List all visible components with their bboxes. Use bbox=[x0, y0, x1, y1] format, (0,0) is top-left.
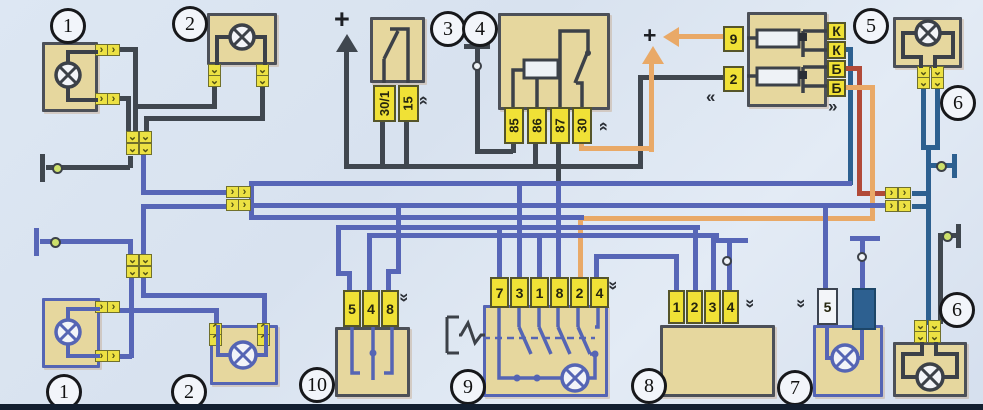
wire-segment bbox=[674, 254, 679, 291]
wire-segment bbox=[396, 203, 401, 273]
ground-dot-icon bbox=[936, 161, 947, 172]
cluster-terminal-2: 2 bbox=[686, 290, 703, 324]
badge-2-top: 2 bbox=[172, 6, 208, 42]
plug-connector-icon: › bbox=[238, 186, 251, 198]
wire-segment bbox=[253, 181, 852, 186]
power-arrow-icon bbox=[336, 34, 358, 52]
switch-lever-icon bbox=[441, 313, 485, 359]
plus-sign-fuse: + bbox=[643, 22, 656, 49]
wire-segment bbox=[253, 203, 890, 208]
double-chevron-icon: « bbox=[740, 299, 757, 308]
wire-segment bbox=[912, 191, 928, 196]
wire-segment bbox=[921, 87, 926, 149]
plug-connector-icon: › bbox=[885, 187, 898, 199]
wire-segment bbox=[533, 143, 538, 169]
double-chevron-icon: « bbox=[596, 122, 613, 131]
plug-connector-icon: ⌄ bbox=[139, 266, 152, 278]
cluster-terminal-4: 4 bbox=[722, 290, 739, 324]
wire-segment bbox=[128, 156, 133, 168]
fuse-box-icon bbox=[747, 12, 827, 107]
fuse-output-b1: Б bbox=[827, 60, 846, 78]
rheostat-terminal-8: 8 bbox=[381, 290, 399, 327]
wire-segment bbox=[649, 60, 654, 152]
wiring-diagram: ››››⌄⌄⌄⌄⌄⌄⌄⌄⌄⌄⌄⌄››››››››››››⌃⌃⌃⌃⌄⌄⌄⌄⌄⌄⌄⌄… bbox=[0, 0, 983, 410]
badge-6-top: 6 bbox=[940, 85, 976, 121]
ignition-terminal-15: 15 bbox=[398, 85, 419, 122]
wire-segment bbox=[141, 204, 146, 258]
wire-segment bbox=[40, 154, 45, 182]
lamp-icon bbox=[42, 42, 98, 112]
plug-connector-icon: ⌄ bbox=[931, 77, 944, 89]
plus-sign-ignition: + bbox=[334, 4, 350, 35]
fuse-output-k1: К bbox=[827, 22, 846, 40]
plug-connector-icon: ⌄ bbox=[126, 143, 139, 155]
plug-connector-icon: › bbox=[898, 187, 911, 199]
license-lamp-terminal-5: 5 bbox=[817, 288, 838, 325]
fuse-input-9: 9 bbox=[723, 26, 744, 52]
wire-segment bbox=[367, 233, 719, 238]
wire-segment bbox=[212, 85, 217, 109]
lamp-icon bbox=[210, 325, 278, 385]
wire-segment bbox=[34, 228, 39, 256]
instrument-cluster-box bbox=[660, 325, 775, 397]
wire-segment bbox=[126, 96, 131, 136]
wire-segment bbox=[141, 293, 267, 298]
plug-connector-icon: › bbox=[107, 93, 120, 105]
wire-segment bbox=[380, 119, 385, 169]
switch-terminal-7: 7 bbox=[490, 277, 509, 308]
wire-segment bbox=[693, 225, 698, 291]
plug-connector-icon: ⌄ bbox=[208, 75, 221, 87]
switch-terminal-8: 8 bbox=[550, 277, 569, 308]
wire-segment bbox=[141, 204, 229, 209]
cluster-terminal-1: 1 bbox=[668, 290, 685, 324]
rheostat-terminal-4: 4 bbox=[362, 290, 380, 327]
ground-dot-icon bbox=[722, 256, 732, 266]
wire-segment bbox=[926, 145, 931, 325]
badge-8: 8 bbox=[631, 368, 667, 404]
fuse-output-k2: К bbox=[827, 41, 846, 59]
wire-segment bbox=[497, 225, 502, 279]
wire-segment bbox=[935, 87, 940, 149]
plug-connector-icon: › bbox=[107, 301, 120, 313]
switch-terminal-1: 1 bbox=[530, 277, 549, 308]
relay-icon bbox=[498, 13, 610, 110]
ignition-terminal-30-1: 30/1 bbox=[373, 85, 396, 122]
ground-dot-icon bbox=[472, 61, 482, 71]
wire-segment bbox=[262, 293, 267, 325]
wire-segment bbox=[347, 271, 352, 291]
wire-segment bbox=[642, 75, 723, 80]
ground-dot-icon bbox=[942, 231, 953, 242]
wire-segment bbox=[511, 143, 516, 153]
badge-4: 4 bbox=[462, 11, 498, 47]
plug-connector-icon: ⌄ bbox=[126, 131, 139, 143]
badge-6-bottom: 6 bbox=[939, 292, 975, 328]
wire-segment bbox=[716, 238, 748, 243]
relay-terminal-87: 87 bbox=[550, 107, 570, 144]
plug-connector-icon: ⌄ bbox=[139, 254, 152, 266]
wire-segment bbox=[344, 164, 642, 169]
wire-segment bbox=[141, 190, 229, 195]
wire-segment bbox=[956, 224, 961, 248]
wire-segment bbox=[870, 85, 875, 221]
wire-segment bbox=[129, 278, 134, 312]
wire-segment bbox=[727, 241, 732, 291]
plug-connector-icon: › bbox=[885, 200, 898, 212]
plug-connector-icon: › bbox=[238, 199, 251, 211]
rheostat-icon bbox=[335, 327, 410, 397]
plug-connector-icon: › bbox=[107, 350, 120, 362]
wire-segment bbox=[556, 143, 561, 185]
lamp-icon bbox=[893, 342, 967, 397]
plug-connector-icon: ⌄ bbox=[126, 254, 139, 266]
wire-segment bbox=[136, 104, 216, 109]
double-chevron-icon: « bbox=[828, 100, 837, 117]
lamp-icon bbox=[42, 298, 100, 368]
plug-connector-icon: ⌄ bbox=[139, 131, 152, 143]
badge-3: 3 bbox=[430, 11, 466, 47]
ignition-switch-icon bbox=[370, 17, 425, 83]
badge-9: 9 bbox=[450, 369, 486, 405]
wire-segment bbox=[556, 183, 561, 279]
wire-segment bbox=[952, 154, 957, 178]
switch-terminal-2: 2 bbox=[570, 277, 589, 308]
wire-segment bbox=[133, 47, 138, 136]
switch-terminal-4: 4 bbox=[590, 277, 609, 308]
fuse-input-2: 2 bbox=[723, 66, 744, 92]
wire-segment bbox=[860, 239, 865, 289]
badge-1-top: 1 bbox=[50, 8, 86, 44]
relay-terminal-85: 85 bbox=[504, 107, 524, 144]
wire-segment bbox=[676, 34, 726, 39]
wire-segment bbox=[638, 75, 643, 169]
license-lamp-connector bbox=[852, 288, 876, 330]
switch-terminal-3: 3 bbox=[510, 277, 529, 308]
double-chevron-icon: « bbox=[791, 299, 808, 308]
wire-segment bbox=[579, 143, 584, 151]
wire-segment bbox=[253, 215, 584, 220]
wire-segment bbox=[144, 116, 264, 121]
wire-segment bbox=[594, 254, 678, 259]
plug-connector-icon: ⌄ bbox=[917, 77, 930, 89]
wire-segment bbox=[537, 233, 542, 279]
plug-connector-icon: ⌄ bbox=[256, 75, 269, 87]
relay-terminal-30: 30 bbox=[572, 107, 592, 144]
wire-segment bbox=[850, 236, 880, 241]
power-arrow-icon bbox=[663, 27, 679, 47]
cluster-terminal-3: 3 bbox=[704, 290, 721, 324]
plug-connector-icon: › bbox=[107, 44, 120, 56]
lamp-icon bbox=[207, 13, 277, 65]
wire-segment bbox=[260, 85, 265, 121]
photo-edge bbox=[0, 404, 983, 410]
lamp-icon bbox=[813, 325, 883, 397]
ground-dot-icon bbox=[857, 252, 867, 262]
double-chevron-icon: « bbox=[706, 88, 715, 105]
wire-segment bbox=[823, 203, 828, 289]
wire-segment bbox=[386, 271, 391, 291]
wire-segment bbox=[336, 225, 341, 273]
badge-5: 5 bbox=[853, 8, 889, 44]
light-switch-icon bbox=[483, 305, 608, 397]
wire-segment bbox=[344, 52, 349, 168]
lamp-icon bbox=[893, 17, 962, 68]
relay-terminal-86: 86 bbox=[527, 107, 547, 144]
ground-dot-icon bbox=[50, 237, 61, 248]
rheostat-terminal-5: 5 bbox=[343, 290, 361, 327]
plug-connector-icon: ⌄ bbox=[139, 143, 152, 155]
wire-segment bbox=[141, 155, 146, 195]
fuse-output-b2: Б bbox=[827, 79, 846, 97]
plug-connector-icon: › bbox=[898, 200, 911, 212]
wire-segment bbox=[912, 204, 928, 209]
badge-7: 7 bbox=[777, 370, 813, 406]
wire-segment bbox=[475, 149, 513, 154]
wire-segment bbox=[584, 146, 652, 151]
wire-segment bbox=[404, 119, 409, 169]
wire-segment bbox=[129, 308, 134, 358]
badge-10: 10 bbox=[299, 367, 335, 403]
ground-dot-icon bbox=[52, 163, 63, 174]
plug-connector-icon: ⌄ bbox=[126, 266, 139, 278]
wire-segment bbox=[580, 216, 873, 221]
wire-segment bbox=[367, 233, 372, 291]
wire-segment bbox=[517, 181, 522, 279]
